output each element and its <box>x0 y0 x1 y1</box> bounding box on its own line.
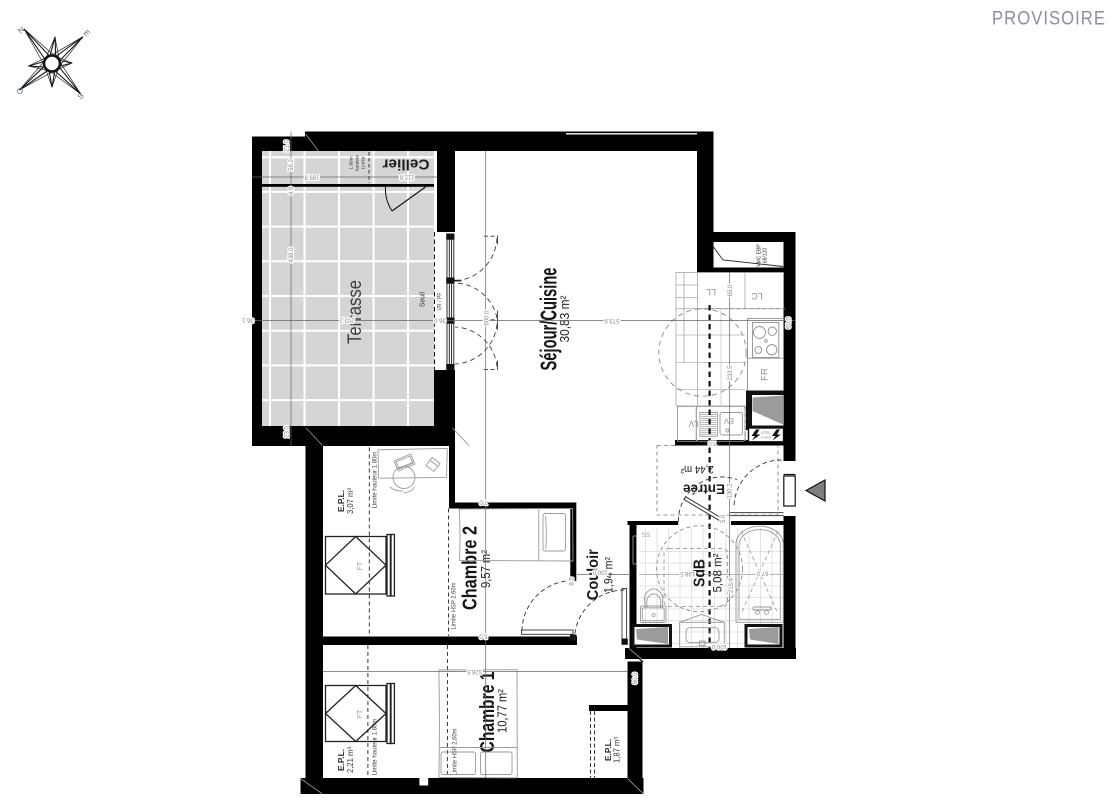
svg-text:VR / PF: VR / PF <box>437 292 444 310</box>
svg-text:600.0: 600.0 <box>484 310 490 326</box>
svg-text:528.5: 528.5 <box>466 668 482 674</box>
svg-text:FT: FT <box>357 709 364 718</box>
svg-text:198.5: 198.5 <box>680 570 696 576</box>
svg-text:LV: LV <box>688 419 698 429</box>
svg-text:438.0: 438.0 <box>289 247 295 263</box>
svg-text:112.6: 112.6 <box>399 174 414 180</box>
svg-text:58.2: 58.2 <box>289 159 295 171</box>
svg-text:23.0: 23.0 <box>285 426 291 438</box>
svg-text:65.0: 65.0 <box>728 284 734 296</box>
svg-text:1.80m: 1.80m <box>349 156 355 169</box>
svg-text:21.0: 21.0 <box>285 140 291 152</box>
svg-text:hauteur: hauteur <box>355 154 361 171</box>
svg-text:Limite hauteur 1.80m: Limite hauteur 1.80m <box>373 719 379 776</box>
svg-text:215.4: 215.4 <box>729 577 735 593</box>
svg-text:Seuil: Seuil <box>420 292 427 307</box>
svg-text:67.0: 67.0 <box>756 570 768 576</box>
svg-text:5,08 m²: 5,08 m² <box>711 554 725 593</box>
svg-text:7.0: 7.0 <box>708 440 717 446</box>
svg-text:1,87 m³: 1,87 m³ <box>612 737 622 763</box>
svg-text:Terrasse: Terrasse <box>345 280 366 344</box>
svg-text:LL: LL <box>706 287 716 297</box>
svg-text:36.0: 36.0 <box>434 316 446 322</box>
svg-text:60.0: 60.0 <box>633 672 639 684</box>
svg-text:3,07 m³: 3,07 m³ <box>345 488 355 514</box>
svg-text:189.6: 189.6 <box>304 174 320 180</box>
svg-text:573.9: 573.9 <box>604 317 620 323</box>
svg-text:Limite HSP 2.60m: Limite HSP 2.60m <box>452 583 458 630</box>
svg-text:FR: FR <box>760 368 771 381</box>
svg-text:2,44 m²: 2,44 m² <box>681 463 714 475</box>
svg-text:Chambre 2: Chambre 2 <box>458 526 481 610</box>
svg-text:LC: LC <box>751 291 763 301</box>
svg-text:8.5: 8.5 <box>570 577 576 586</box>
svg-text:ETEL: ETEL <box>762 431 771 435</box>
svg-text:EV: EV <box>724 417 734 426</box>
svg-text:SS: SS <box>642 532 651 539</box>
svg-text:ADMEB: ADMEB <box>761 436 772 440</box>
svg-text:100.0: 100.0 <box>592 568 608 574</box>
svg-text:36.1: 36.1 <box>242 316 254 322</box>
svg-text:2,21 m³: 2,21 m³ <box>345 747 355 773</box>
svg-text:Limite hauteur 1.80m: Limite hauteur 1.80m <box>372 452 378 509</box>
svg-text:5.0: 5.0 <box>479 633 488 639</box>
svg-text:FT: FT <box>357 561 364 570</box>
svg-text:5.0: 5.0 <box>721 514 727 523</box>
svg-text:Entrée: Entrée <box>683 481 725 497</box>
svg-text:100.0: 100.0 <box>711 643 727 649</box>
svg-text:10,77 m²: 10,77 m² <box>496 689 510 733</box>
svg-text:130.2: 130.2 <box>728 483 734 499</box>
svg-text:Limite: Limite <box>361 156 367 169</box>
svg-text:203.2: 203.2 <box>339 316 355 322</box>
svg-text:4.9: 4.9 <box>289 186 295 195</box>
svg-text:60.0: 60.0 <box>787 317 793 329</box>
svg-text:233.5: 233.5 <box>728 365 734 381</box>
svg-text:30,83 m²: 30,83 m² <box>557 295 572 343</box>
svg-text:PROVISOIRE: PROVISOIRE <box>992 8 1106 30</box>
svg-text:7.0: 7.0 <box>479 499 488 505</box>
svg-text:68/120: 68/120 <box>763 248 769 264</box>
svg-text:Cellier: Cellier <box>382 155 429 171</box>
